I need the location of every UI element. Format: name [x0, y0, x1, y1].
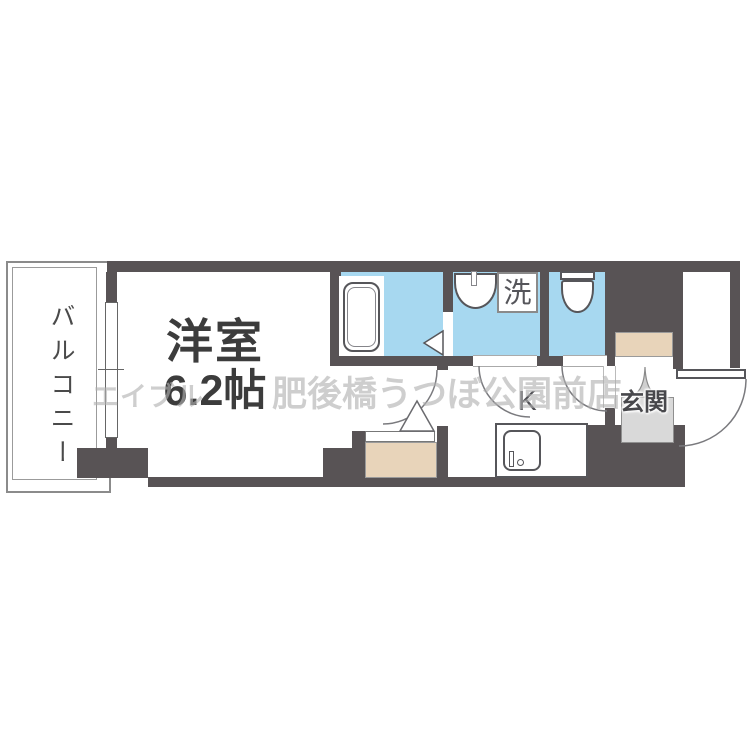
- wall-left-upper: [106, 272, 117, 303]
- toilet-tank-icon: [560, 271, 595, 280]
- bathroom-door-opening: [443, 312, 453, 356]
- main-room-label: 洋室: [110, 317, 320, 366]
- kitchen-tap-icon: [509, 451, 514, 467]
- closet: [365, 442, 437, 478]
- agency-watermark-branch: 肥後橋うつぼ公園前店: [272, 375, 622, 414]
- wall-far-right: [730, 261, 740, 368]
- washing-machine-pan: 洗: [497, 272, 538, 313]
- wall-closet-left-b: [323, 448, 352, 478]
- entrance-door-leaf: [676, 369, 746, 379]
- kitchen-drain-icon: [517, 459, 524, 466]
- bathtub-inner-line: [347, 287, 376, 347]
- wall-entrance-right: [673, 332, 683, 369]
- entrance-door-arc: [679, 379, 746, 446]
- wall-block-top-right: [605, 261, 683, 332]
- agency-watermark-name: エイブル: [92, 382, 204, 412]
- laundry-label: 洗: [503, 278, 531, 307]
- agency-watermark: エイブル肥後橋うつぼ公園前店: [92, 366, 622, 417]
- shoe-cabinet: [615, 332, 673, 357]
- wall-closet-left-a: [352, 431, 365, 478]
- closet-door: [365, 431, 435, 442]
- wall-pillar-bottom-left: [77, 448, 148, 478]
- wall-laundry-toilet: [540, 272, 549, 356]
- floor-plan: バルコニー 洗: [0, 0, 750, 750]
- balcony-label: バルコニー: [44, 303, 74, 488]
- washbasin-tap-icon: [471, 271, 477, 286]
- wall-room-kitchen-lower: [437, 426, 448, 480]
